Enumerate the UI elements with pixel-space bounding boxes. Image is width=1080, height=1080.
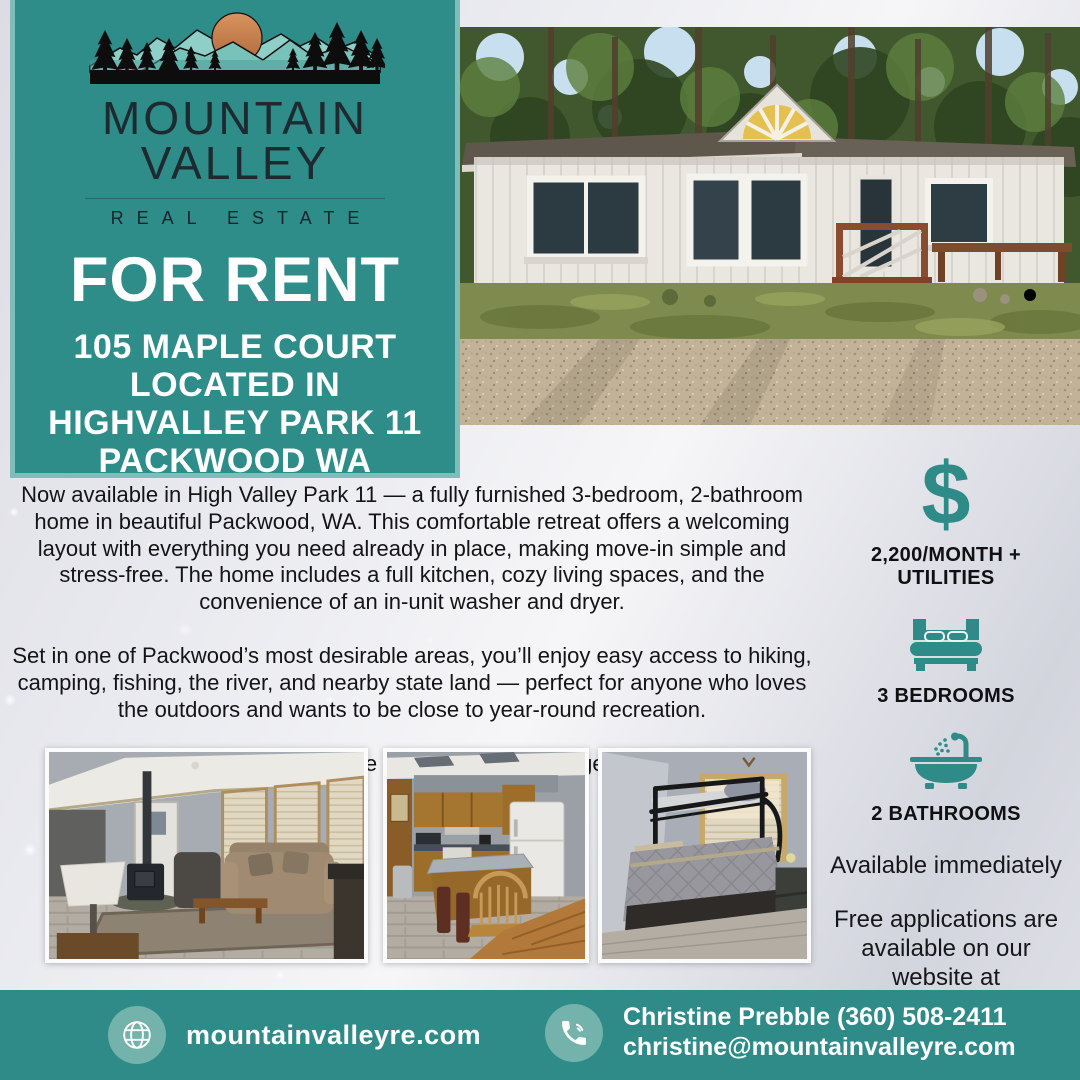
bathrooms-label: 2 BATHROOMS: [822, 803, 1070, 826]
bathtub-icon: [908, 732, 984, 795]
description-paragraph: Now available in High Valley Park 11 — a…: [12, 482, 812, 616]
contact-name-phone[interactable]: Christine Prebble (360) 508-2411: [623, 1003, 1016, 1033]
bed-icon: [908, 618, 984, 677]
brand-panel: MOUNTAIN VALLEY REAL ESTATE FOR RENT 105…: [10, 0, 460, 478]
address-line: HIGHVALLEY PARK 11: [15, 404, 455, 442]
price-label: 2,200/MONTH + UTILITIES: [822, 544, 1070, 590]
property-description: Now available in High Valley Park 11 — a…: [12, 482, 812, 777]
address-line: LOCATED IN: [15, 366, 455, 404]
for-rent-heading: FOR RENT: [15, 244, 455, 316]
brand-name: MOUNTAIN VALLEY: [15, 96, 455, 186]
description-paragraph: Set in one of Packwood’s most desirable …: [12, 643, 812, 723]
gallery-photo-bedroom: [598, 748, 811, 963]
availability-note: Available immediately: [822, 852, 1070, 881]
bedrooms-label: 3 BEDROOMS: [822, 685, 1070, 708]
contact-item: Christine Prebble (360) 508-2411 christi…: [545, 1003, 1016, 1062]
brand-name-line2: VALLEY: [15, 141, 455, 186]
brand-divider: [85, 198, 385, 199]
contact-text: Christine Prebble (360) 508-2411 christi…: [623, 1003, 1016, 1062]
website-item: mountainvalleyre.com: [108, 1006, 481, 1064]
brand-tagline: REAL ESTATE: [15, 208, 455, 229]
property-address: 105 MAPLE COURT LOCATED IN HIGHVALLEY PA…: [15, 328, 455, 480]
gallery-photo-living-room: [45, 748, 368, 963]
details-column: $ 2,200/MONTH + UTILITIES 3 BEDROOMS: [822, 452, 1070, 1022]
footer-bar: mountainvalleyre.com Christine Prebble (…: [0, 990, 1080, 1080]
address-line: PACKWOOD WA: [15, 442, 455, 480]
phone-icon: [545, 1004, 603, 1062]
address-line: 105 MAPLE COURT: [15, 328, 455, 366]
mountain-valley-logo-icon: [85, 8, 385, 96]
website-text[interactable]: mountainvalleyre.com: [186, 1020, 481, 1051]
globe-icon: [108, 1006, 166, 1064]
rental-flyer: MOUNTAIN VALLEY REAL ESTATE FOR RENT 105…: [0, 0, 1080, 1080]
contact-email[interactable]: christine@mountainvalleyre.com: [623, 1033, 1016, 1063]
dollar-icon: $: [822, 452, 1070, 536]
exterior-photo: [460, 27, 1080, 425]
gallery-photo-kitchen: [383, 748, 589, 963]
brand-name-line1: MOUNTAIN: [15, 96, 455, 141]
